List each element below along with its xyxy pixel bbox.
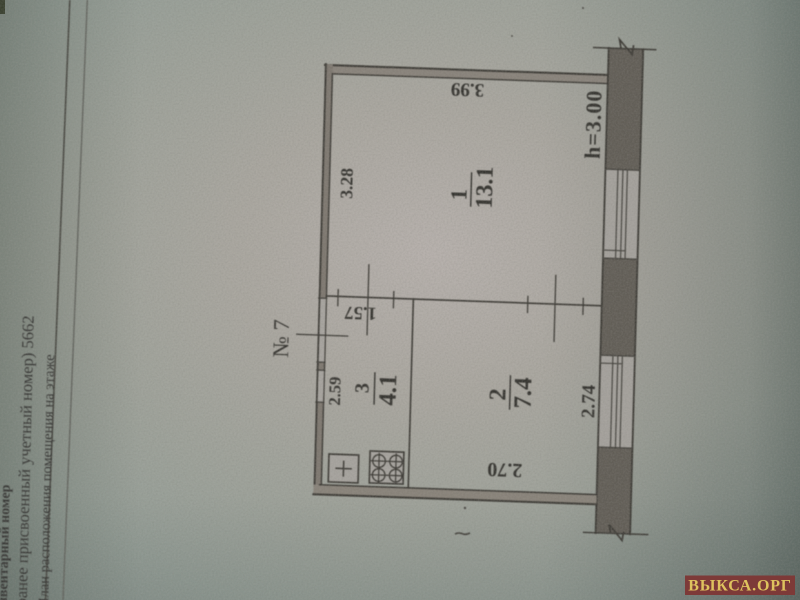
svg-text:ВЫКСА.ОРГ: ВЫКСА.ОРГ: [688, 578, 792, 595]
